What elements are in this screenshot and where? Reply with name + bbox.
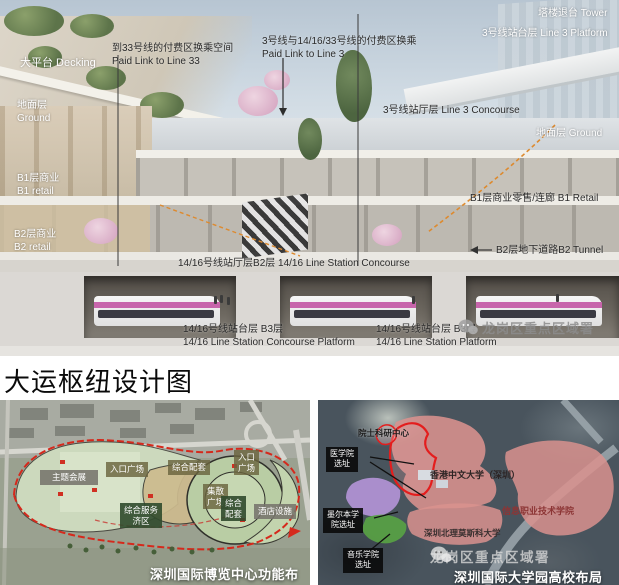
- expo-site-plan: [0, 400, 310, 585]
- label-melbourne-college-site: 墨尔本学 院选址: [323, 508, 363, 533]
- university-map-caption: 深圳国际大学园高校布局: [454, 567, 603, 585]
- watermark: 龙岗区重点区域署: [458, 318, 594, 337]
- label-b1-retail-left: B1层商业 B1 retail: [17, 172, 59, 198]
- label-decking: 大平台 Decking: [20, 56, 96, 70]
- label-cuhk-shenzhen: 香港中文大学（深圳）: [430, 470, 520, 482]
- red-boundary-arrow: [288, 527, 301, 538]
- wechat-icon: [458, 319, 478, 336]
- label-1416-concourse: 14/16号线站厅层B2层 14/16 Line Station Concour…: [178, 257, 410, 270]
- label-research-center: 院士科研中心: [358, 428, 409, 439]
- label-b2-tunnel: B2层地下道路B2 Tunnel: [496, 244, 603, 257]
- label-ground-right: 地面层 Ground: [536, 127, 602, 140]
- wechat-icon: [430, 546, 452, 564]
- label-line3-platform: 3号线站台层 Line 3 Platform: [482, 27, 608, 40]
- watermark: 龙岗区重点区域署: [430, 546, 550, 566]
- label-msu-bit-university: 深圳北理莫斯科大学: [424, 528, 501, 539]
- page: 大平台 Decking 到33号线的付费区换乘空间 Paid Link to L…: [0, 0, 619, 585]
- expo-center-map-image[interactable]: 主题会展 入口广场 综合配套 入口 广场 集散 广场 综合 配套 酒店设施 综合…: [0, 400, 310, 585]
- hub-rendering-image[interactable]: 大平台 Decking 到33号线的付费区换乘空间 Paid Link to L…: [0, 0, 619, 356]
- zone-label-hotel-facilities: 酒店设施: [254, 504, 296, 519]
- zone-label-support-facilities: 综合配套: [168, 460, 210, 475]
- label-paid-link-line3: 3号线与14/16/33号线的付费区换乘 Paid Link to Line 3: [262, 35, 417, 61]
- zone-label-entrance-plaza: 入口广场: [106, 462, 148, 477]
- label-info-tech-college: 信息职业技术学院: [502, 506, 574, 518]
- label-b1-retail-right: B1层商业零售/连廊 B1 Retail: [470, 192, 598, 205]
- label-line3-concourse: 3号线站厅层 Line 3 Concourse: [383, 104, 520, 117]
- page-title: 大运枢纽设计图: [0, 356, 619, 399]
- road: [563, 400, 601, 442]
- expo-map-caption: 深圳国际博览中心功能布局: [150, 564, 310, 585]
- flow-dashed-line: [160, 205, 300, 256]
- label-b3-concourse-platform: 14/16号线站台层 B3层 14/16 Line Station Concou…: [183, 323, 355, 349]
- label-tower: 塔楼退台 Tower: [538, 7, 607, 20]
- label-b2-retail-left: B2层商业 B2 retail: [14, 228, 56, 254]
- info-college-zone: [505, 440, 614, 535]
- label-paid-link-line33: 到33号线的付费区换乘空间 Paid Link to Line 33: [112, 42, 233, 68]
- zone-label-service-area: 综合服务 济区: [120, 503, 162, 528]
- zone-label-support-facilities-2: 综合 配套: [221, 496, 246, 521]
- tunnel-arrow-head: [470, 246, 478, 254]
- flow-dashed-line: [428, 125, 555, 232]
- zone-label-theme-exhibition: 主题会展: [40, 470, 98, 485]
- arrow-head: [279, 108, 287, 116]
- section-title-bar: 大运枢纽设计图: [0, 356, 619, 400]
- label-ground-left: 地面层 Ground: [17, 99, 50, 125]
- zone-label-entrance-plaza-2: 入口 广场: [234, 450, 259, 475]
- watermark-text: 龙岗区重点区域署: [482, 318, 594, 337]
- label-medical-school-site: 医学院 选址: [326, 447, 358, 472]
- label-music-college-site: 音乐学院 选址: [343, 548, 383, 573]
- university-park-map-image[interactable]: 院士科研中心 医学院 选址 香港中文大学（深圳） 信息职业技术学院 墨尔本学 院…: [318, 400, 619, 585]
